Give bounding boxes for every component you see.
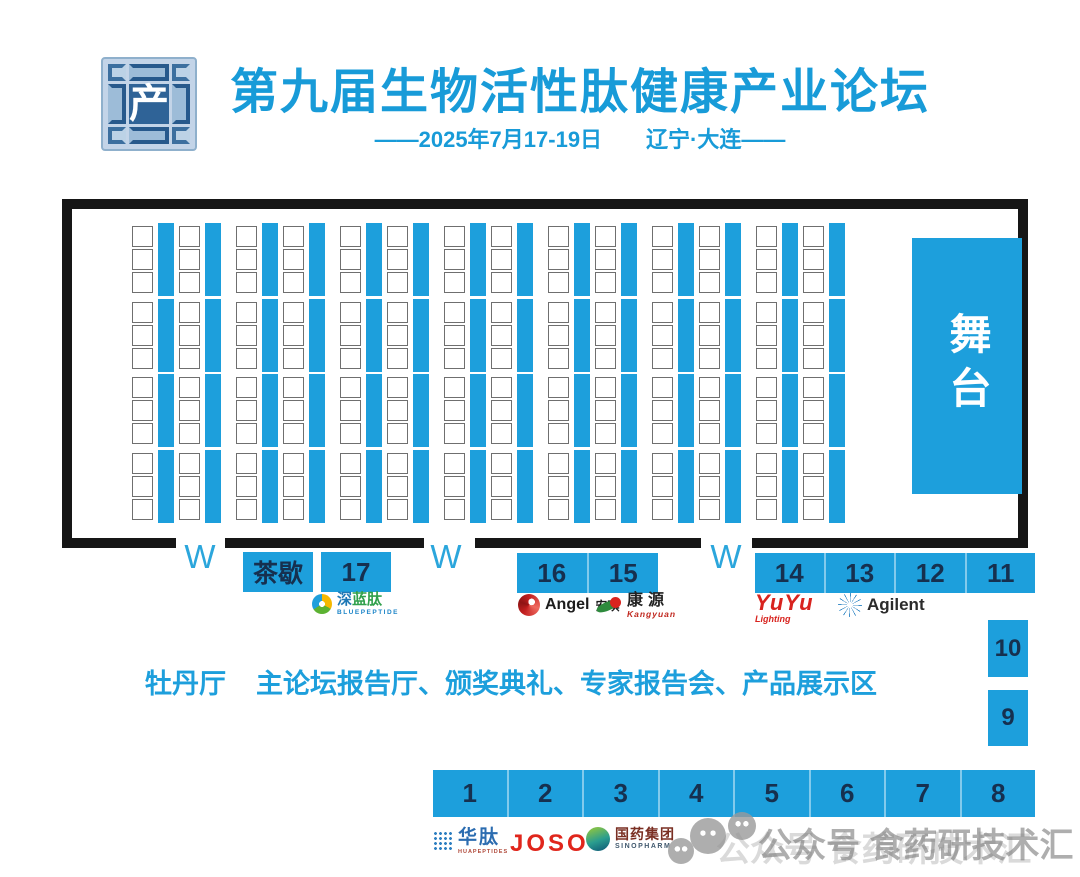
seat-block bbox=[491, 302, 512, 369]
booth-cell: 14 bbox=[755, 553, 824, 593]
seat bbox=[283, 249, 304, 270]
seat bbox=[803, 325, 824, 346]
seat bbox=[491, 302, 512, 323]
table-strip bbox=[621, 374, 637, 447]
tea-break-box: 茶歇 bbox=[243, 552, 313, 592]
seat bbox=[595, 226, 616, 247]
door-label: W bbox=[416, 540, 476, 573]
table-strip-column bbox=[366, 223, 382, 523]
table-strip-column bbox=[782, 223, 798, 523]
table-strip bbox=[309, 223, 325, 296]
table-strip bbox=[678, 299, 694, 372]
seat bbox=[803, 423, 824, 444]
joso-logo: JOSO bbox=[510, 830, 589, 858]
hall-usage: 主论坛报告厅、颁奖典礼、专家报告会、产品展示区 bbox=[256, 669, 877, 699]
seat bbox=[444, 400, 465, 421]
seat bbox=[340, 400, 361, 421]
seat-block bbox=[756, 302, 777, 369]
table-strip bbox=[262, 374, 278, 447]
hall-name: 牡丹厅 bbox=[145, 669, 226, 699]
table-strip bbox=[621, 223, 637, 296]
seat bbox=[236, 476, 257, 497]
table-strip bbox=[517, 450, 533, 523]
seat-block bbox=[340, 226, 361, 293]
seat bbox=[803, 476, 824, 497]
seat-block bbox=[595, 377, 616, 444]
table-strip bbox=[829, 223, 845, 296]
table-strip bbox=[158, 299, 174, 372]
seat-column bbox=[444, 226, 465, 523]
page-subtitle: ——2025年7月17-19日 辽宁·大连—— bbox=[130, 122, 1030, 154]
seat bbox=[756, 226, 777, 247]
seat-group bbox=[756, 226, 845, 523]
seat bbox=[548, 423, 569, 444]
table-strip-column bbox=[158, 223, 174, 523]
seat bbox=[236, 325, 257, 346]
seat bbox=[803, 348, 824, 369]
seat bbox=[340, 423, 361, 444]
seat bbox=[179, 249, 200, 270]
seat bbox=[387, 226, 408, 247]
seat bbox=[652, 249, 673, 270]
table-strip bbox=[678, 450, 694, 523]
booth-cell: 13 bbox=[824, 553, 895, 593]
table-strip bbox=[725, 374, 741, 447]
seat bbox=[236, 249, 257, 270]
table-strip bbox=[517, 374, 533, 447]
seat-column bbox=[548, 226, 569, 523]
seat bbox=[444, 226, 465, 247]
seat-block bbox=[179, 453, 200, 520]
table-strip bbox=[782, 223, 798, 296]
seat bbox=[387, 377, 408, 398]
table-strip-column bbox=[205, 223, 221, 523]
seat bbox=[132, 476, 153, 497]
seat bbox=[444, 249, 465, 270]
seat bbox=[283, 348, 304, 369]
seat-block bbox=[652, 453, 673, 520]
seat bbox=[491, 226, 512, 247]
seat bbox=[699, 325, 720, 346]
seat-block bbox=[387, 453, 408, 520]
seat bbox=[803, 272, 824, 293]
seat-column bbox=[699, 226, 720, 523]
table-strip-column bbox=[678, 223, 694, 523]
seat bbox=[132, 249, 153, 270]
seat bbox=[132, 453, 153, 474]
seat bbox=[444, 476, 465, 497]
seat bbox=[387, 499, 408, 520]
seat bbox=[756, 325, 777, 346]
seat bbox=[340, 499, 361, 520]
table-strip bbox=[205, 223, 221, 296]
seat bbox=[548, 302, 569, 323]
seat bbox=[595, 400, 616, 421]
seat bbox=[179, 453, 200, 474]
seat bbox=[387, 325, 408, 346]
kangyuan-name: 康源 bbox=[627, 592, 676, 610]
seat bbox=[444, 272, 465, 293]
table-strip bbox=[782, 450, 798, 523]
seat-block bbox=[340, 453, 361, 520]
seat bbox=[548, 348, 569, 369]
table-strip bbox=[205, 374, 221, 447]
table-strip bbox=[574, 299, 590, 372]
hall-caption: 牡丹厅主论坛报告厅、颁奖典礼、专家报告会、产品展示区 bbox=[145, 662, 877, 701]
seat bbox=[548, 377, 569, 398]
seat bbox=[548, 272, 569, 293]
door-label: W bbox=[170, 540, 230, 573]
booth-17: 17 bbox=[321, 552, 391, 592]
seat bbox=[699, 226, 720, 247]
seat bbox=[387, 453, 408, 474]
bluepeptide-name: 深蓝肽 bbox=[337, 592, 399, 609]
table-strip bbox=[413, 223, 429, 296]
seat-block bbox=[236, 302, 257, 369]
seat bbox=[595, 453, 616, 474]
seat bbox=[803, 499, 824, 520]
seat bbox=[387, 249, 408, 270]
agilent-logo: Agilent bbox=[838, 593, 925, 617]
seat bbox=[595, 302, 616, 323]
seat bbox=[340, 453, 361, 474]
seat-block bbox=[803, 377, 824, 444]
seat bbox=[132, 226, 153, 247]
table-strip bbox=[517, 223, 533, 296]
seat bbox=[491, 476, 512, 497]
seat bbox=[236, 423, 257, 444]
seat bbox=[699, 453, 720, 474]
seat bbox=[652, 325, 673, 346]
table-strip bbox=[470, 450, 486, 523]
seat-block bbox=[652, 226, 673, 293]
booth-cell: 16 bbox=[517, 553, 587, 593]
seat bbox=[132, 302, 153, 323]
table-strip bbox=[158, 450, 174, 523]
seat bbox=[699, 348, 720, 369]
seat bbox=[236, 226, 257, 247]
booth-cell: 8 bbox=[960, 770, 1036, 817]
seat-block bbox=[132, 453, 153, 520]
seat bbox=[236, 272, 257, 293]
table-strip bbox=[517, 299, 533, 372]
table-strip bbox=[725, 299, 741, 372]
seat-block bbox=[699, 453, 720, 520]
seat bbox=[548, 226, 569, 247]
seat-block bbox=[236, 226, 257, 293]
seat-block bbox=[283, 377, 304, 444]
seat bbox=[236, 499, 257, 520]
booth-9: 9 bbox=[988, 690, 1028, 746]
seat-block bbox=[756, 377, 777, 444]
seat-block bbox=[548, 302, 569, 369]
seat-block bbox=[548, 453, 569, 520]
booth-cell: 3 bbox=[582, 770, 658, 817]
seat bbox=[595, 325, 616, 346]
seat bbox=[444, 348, 465, 369]
seat-block bbox=[652, 302, 673, 369]
table-strip bbox=[574, 450, 590, 523]
seat-column bbox=[652, 226, 673, 523]
seat bbox=[756, 453, 777, 474]
seat-column bbox=[595, 226, 616, 523]
booths-14-11: 14131211 bbox=[755, 553, 1035, 593]
seat-block bbox=[283, 453, 304, 520]
table-strip bbox=[574, 374, 590, 447]
seat-block bbox=[179, 226, 200, 293]
seat bbox=[548, 249, 569, 270]
seat bbox=[236, 302, 257, 323]
table-strip-column bbox=[470, 223, 486, 523]
seat-column bbox=[132, 226, 153, 523]
seating-grid bbox=[132, 226, 845, 523]
seat bbox=[699, 400, 720, 421]
table-strip bbox=[413, 299, 429, 372]
seat bbox=[132, 499, 153, 520]
seat bbox=[652, 400, 673, 421]
seat-block bbox=[803, 226, 824, 293]
bluepeptide-logo: 深蓝肽 BLUEPEPTIDE bbox=[312, 592, 399, 616]
seat bbox=[283, 302, 304, 323]
seat bbox=[387, 400, 408, 421]
door-label: W bbox=[696, 540, 756, 573]
seat-block bbox=[132, 377, 153, 444]
seat bbox=[179, 325, 200, 346]
seat-block bbox=[756, 226, 777, 293]
table-strip bbox=[829, 450, 845, 523]
seat bbox=[179, 476, 200, 497]
seat bbox=[803, 377, 824, 398]
seat-block bbox=[444, 453, 465, 520]
seat-group bbox=[236, 226, 325, 523]
seat bbox=[652, 499, 673, 520]
table-strip bbox=[262, 223, 278, 296]
seat bbox=[595, 377, 616, 398]
watermark-text: 公众号 食药研技术汇 bbox=[758, 818, 1073, 867]
seat-group bbox=[652, 226, 741, 523]
table-strip bbox=[205, 450, 221, 523]
seat-block bbox=[652, 377, 673, 444]
seat-block bbox=[548, 377, 569, 444]
seat-block bbox=[387, 377, 408, 444]
table-strip bbox=[678, 374, 694, 447]
seat-block bbox=[444, 302, 465, 369]
table-strip bbox=[725, 450, 741, 523]
seat bbox=[283, 453, 304, 474]
seat bbox=[444, 377, 465, 398]
seat bbox=[444, 423, 465, 444]
stage: 舞台 bbox=[912, 238, 1022, 494]
booth-cell: 11 bbox=[965, 553, 1036, 593]
table-strip-column bbox=[517, 223, 533, 523]
angel-name-en: Angel bbox=[545, 596, 589, 614]
seat-block bbox=[179, 302, 200, 369]
table-strip bbox=[829, 374, 845, 447]
huapeptides-en: HUAPEPTIDES bbox=[458, 849, 508, 855]
seat bbox=[283, 272, 304, 293]
seat-group bbox=[548, 226, 637, 523]
seat bbox=[340, 272, 361, 293]
seat-block bbox=[387, 302, 408, 369]
seat bbox=[387, 272, 408, 293]
table-strip bbox=[309, 299, 325, 372]
booth-cell: 7 bbox=[884, 770, 960, 817]
seat-block bbox=[444, 377, 465, 444]
bluepeptide-en: BLUEPEPTIDE bbox=[337, 609, 399, 616]
seat bbox=[340, 476, 361, 497]
seat bbox=[132, 400, 153, 421]
seat bbox=[756, 377, 777, 398]
seat bbox=[756, 423, 777, 444]
seat bbox=[652, 476, 673, 497]
seat-group bbox=[340, 226, 429, 523]
table-strip bbox=[782, 299, 798, 372]
seat bbox=[548, 499, 569, 520]
seat bbox=[236, 377, 257, 398]
seat-column bbox=[283, 226, 304, 523]
seat bbox=[179, 348, 200, 369]
seat bbox=[444, 499, 465, 520]
seat bbox=[179, 302, 200, 323]
seat bbox=[340, 226, 361, 247]
seat bbox=[548, 476, 569, 497]
seat bbox=[491, 348, 512, 369]
booths-1-8: 12345678 bbox=[433, 770, 1035, 817]
seat-block bbox=[387, 226, 408, 293]
seat bbox=[283, 377, 304, 398]
seat-block bbox=[236, 377, 257, 444]
kangyuan-logo: 康源 Kangyuan bbox=[596, 592, 676, 619]
table-strip bbox=[262, 450, 278, 523]
table-strip bbox=[574, 223, 590, 296]
kangyuan-en: Kangyuan bbox=[627, 610, 676, 619]
seat bbox=[548, 453, 569, 474]
seat bbox=[756, 249, 777, 270]
seat bbox=[340, 377, 361, 398]
booths-16-15: 1615 bbox=[517, 553, 658, 593]
agilent-name: Agilent bbox=[867, 595, 925, 615]
seat-block bbox=[595, 226, 616, 293]
table-strip bbox=[621, 299, 637, 372]
seat bbox=[756, 272, 777, 293]
seat-column bbox=[340, 226, 361, 523]
seat bbox=[756, 302, 777, 323]
seat-block bbox=[340, 377, 361, 444]
huapeptides-icon bbox=[433, 831, 453, 851]
seat bbox=[340, 249, 361, 270]
seat-block bbox=[132, 226, 153, 293]
seat bbox=[444, 453, 465, 474]
seat bbox=[699, 499, 720, 520]
seat bbox=[387, 423, 408, 444]
table-strip bbox=[621, 450, 637, 523]
table-strip bbox=[470, 299, 486, 372]
event-floorplan-poster: 产 第九届生物活性肽健康产业论坛 ——2025年7月17-19日 辽宁·大连——… bbox=[0, 0, 1080, 877]
seat bbox=[444, 325, 465, 346]
seat bbox=[595, 272, 616, 293]
huapeptides-name: 华肽 bbox=[458, 828, 508, 849]
seat bbox=[387, 302, 408, 323]
table-strip bbox=[678, 223, 694, 296]
table-strip bbox=[366, 299, 382, 372]
seat bbox=[699, 377, 720, 398]
seat-block bbox=[491, 377, 512, 444]
seat bbox=[491, 499, 512, 520]
table-strip-column bbox=[725, 223, 741, 523]
seat-column bbox=[803, 226, 824, 523]
table-strip-column bbox=[574, 223, 590, 523]
table-strip bbox=[366, 223, 382, 296]
seat-block bbox=[491, 453, 512, 520]
table-strip bbox=[262, 299, 278, 372]
table-strip bbox=[366, 450, 382, 523]
table-strip bbox=[829, 299, 845, 372]
seat-column bbox=[387, 226, 408, 523]
seat-block bbox=[595, 302, 616, 369]
seat bbox=[595, 423, 616, 444]
seat bbox=[699, 302, 720, 323]
seat bbox=[387, 476, 408, 497]
seat bbox=[803, 226, 824, 247]
seat bbox=[652, 226, 673, 247]
seat bbox=[756, 400, 777, 421]
seat bbox=[756, 476, 777, 497]
table-strip bbox=[470, 374, 486, 447]
seat-block bbox=[803, 302, 824, 369]
seat bbox=[283, 226, 304, 247]
seat-block bbox=[699, 377, 720, 444]
seat-block bbox=[132, 302, 153, 369]
seat bbox=[652, 453, 673, 474]
seat bbox=[803, 302, 824, 323]
seat bbox=[548, 325, 569, 346]
seat bbox=[179, 423, 200, 444]
booth-cell: 12 bbox=[894, 553, 965, 593]
seat bbox=[699, 476, 720, 497]
table-strip-column bbox=[829, 223, 845, 523]
kangyuan-icon bbox=[596, 595, 622, 615]
table-strip-column bbox=[262, 223, 278, 523]
page-title: 第九届生物活性肽健康产业论坛 bbox=[130, 52, 1030, 122]
seat bbox=[491, 453, 512, 474]
seat bbox=[179, 400, 200, 421]
table-strip bbox=[366, 374, 382, 447]
angel-icon bbox=[518, 594, 540, 616]
seat bbox=[132, 423, 153, 444]
seat bbox=[236, 400, 257, 421]
booth-cell: 4 bbox=[658, 770, 734, 817]
seat bbox=[756, 348, 777, 369]
table-strip bbox=[205, 299, 221, 372]
seat-block bbox=[699, 302, 720, 369]
table-strip-column bbox=[621, 223, 637, 523]
table-strip bbox=[782, 374, 798, 447]
seat-block bbox=[803, 453, 824, 520]
table-strip bbox=[158, 223, 174, 296]
seat bbox=[340, 348, 361, 369]
seat bbox=[803, 453, 824, 474]
seat bbox=[236, 453, 257, 474]
agilent-icon bbox=[838, 593, 862, 617]
seat bbox=[444, 302, 465, 323]
seat bbox=[491, 249, 512, 270]
seat bbox=[179, 272, 200, 293]
seat bbox=[652, 348, 673, 369]
seat bbox=[283, 400, 304, 421]
seat-column bbox=[179, 226, 200, 523]
seat bbox=[179, 377, 200, 398]
seat-block bbox=[491, 226, 512, 293]
